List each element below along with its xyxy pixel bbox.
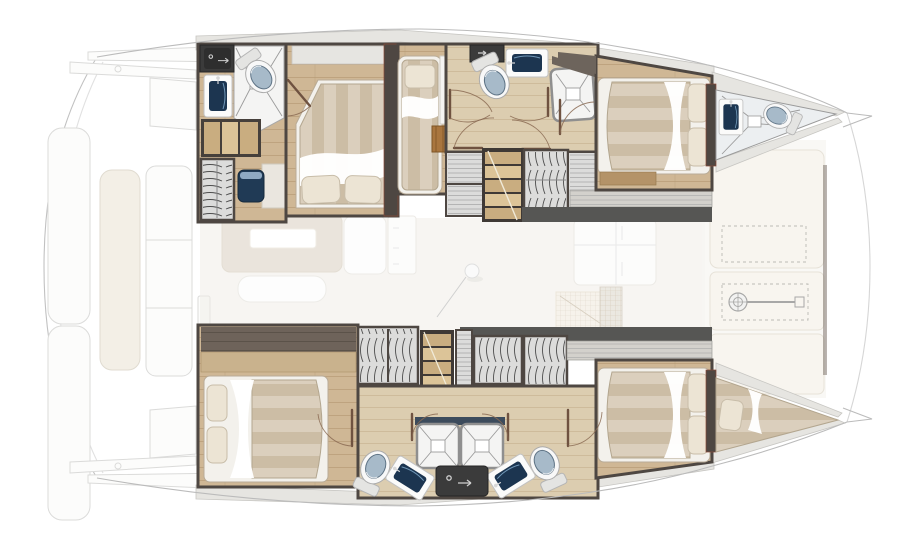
port-aft-head: [198, 44, 286, 222]
pillow: [207, 385, 227, 421]
owner-cabin: [286, 44, 398, 216]
hatched-locker: [446, 152, 484, 216]
wardrobe: [524, 336, 567, 386]
pillow: [345, 175, 382, 203]
salon-sofa: [344, 216, 386, 274]
stbd-heads: [351, 386, 598, 501]
wardrobe: [201, 159, 234, 220]
cabin-wall: [201, 327, 356, 352]
washbasin: [204, 75, 232, 117]
forward-crossbeam: [823, 165, 827, 375]
catamaran-floorplan: [0, 0, 900, 535]
swim-platform-stbd: [48, 326, 90, 520]
salon-bench: [238, 276, 326, 302]
staircase: [482, 148, 524, 222]
hull-shelf: [292, 46, 396, 64]
stbd-aft-cabin: [198, 325, 358, 487]
desk-chair: [238, 170, 264, 202]
salon-front-wall: [522, 207, 712, 222]
steps: [201, 119, 261, 157]
bow-bridle-line: [847, 113, 870, 422]
cockpit-panel-bottom: [150, 406, 196, 458]
wardrobe: [524, 150, 568, 210]
table-inset: [250, 229, 316, 248]
cockpit-panel-top: [150, 78, 196, 130]
vanity-desk: [262, 164, 286, 208]
cockpit-bench-cushion: [100, 170, 140, 370]
mast-base: [465, 264, 479, 278]
bow-bed: [598, 368, 710, 462]
floorplan-page: [0, 0, 900, 535]
salon-galley: [200, 214, 705, 338]
pillow: [718, 399, 744, 432]
washbasin: [719, 99, 743, 135]
pillow: [207, 427, 227, 463]
swim-platform-port: [48, 128, 90, 324]
aft-bed: [204, 376, 328, 482]
shower: [417, 424, 459, 468]
cockpit-console: [146, 166, 192, 376]
wardrobe: [474, 336, 522, 384]
pillow: [688, 84, 708, 122]
galley-counter: [574, 219, 656, 285]
bed-step: [600, 172, 656, 185]
center-cabinet: [436, 466, 488, 496]
salon-cabinet: [388, 216, 416, 274]
hatched-locker: [456, 330, 472, 390]
pillow: [688, 374, 708, 412]
owner-bed: [296, 80, 390, 208]
pillow: [688, 128, 708, 166]
pillow: [301, 175, 340, 204]
wardrobe: [358, 327, 418, 384]
pillow: [688, 416, 708, 454]
side-step-top: [70, 62, 196, 79]
pillow: [405, 65, 435, 88]
vanity-sink: [506, 49, 548, 77]
shower: [461, 424, 503, 468]
single-berth: [384, 44, 454, 216]
shelf-ledge: [201, 352, 356, 372]
bow-bed: [598, 78, 710, 174]
